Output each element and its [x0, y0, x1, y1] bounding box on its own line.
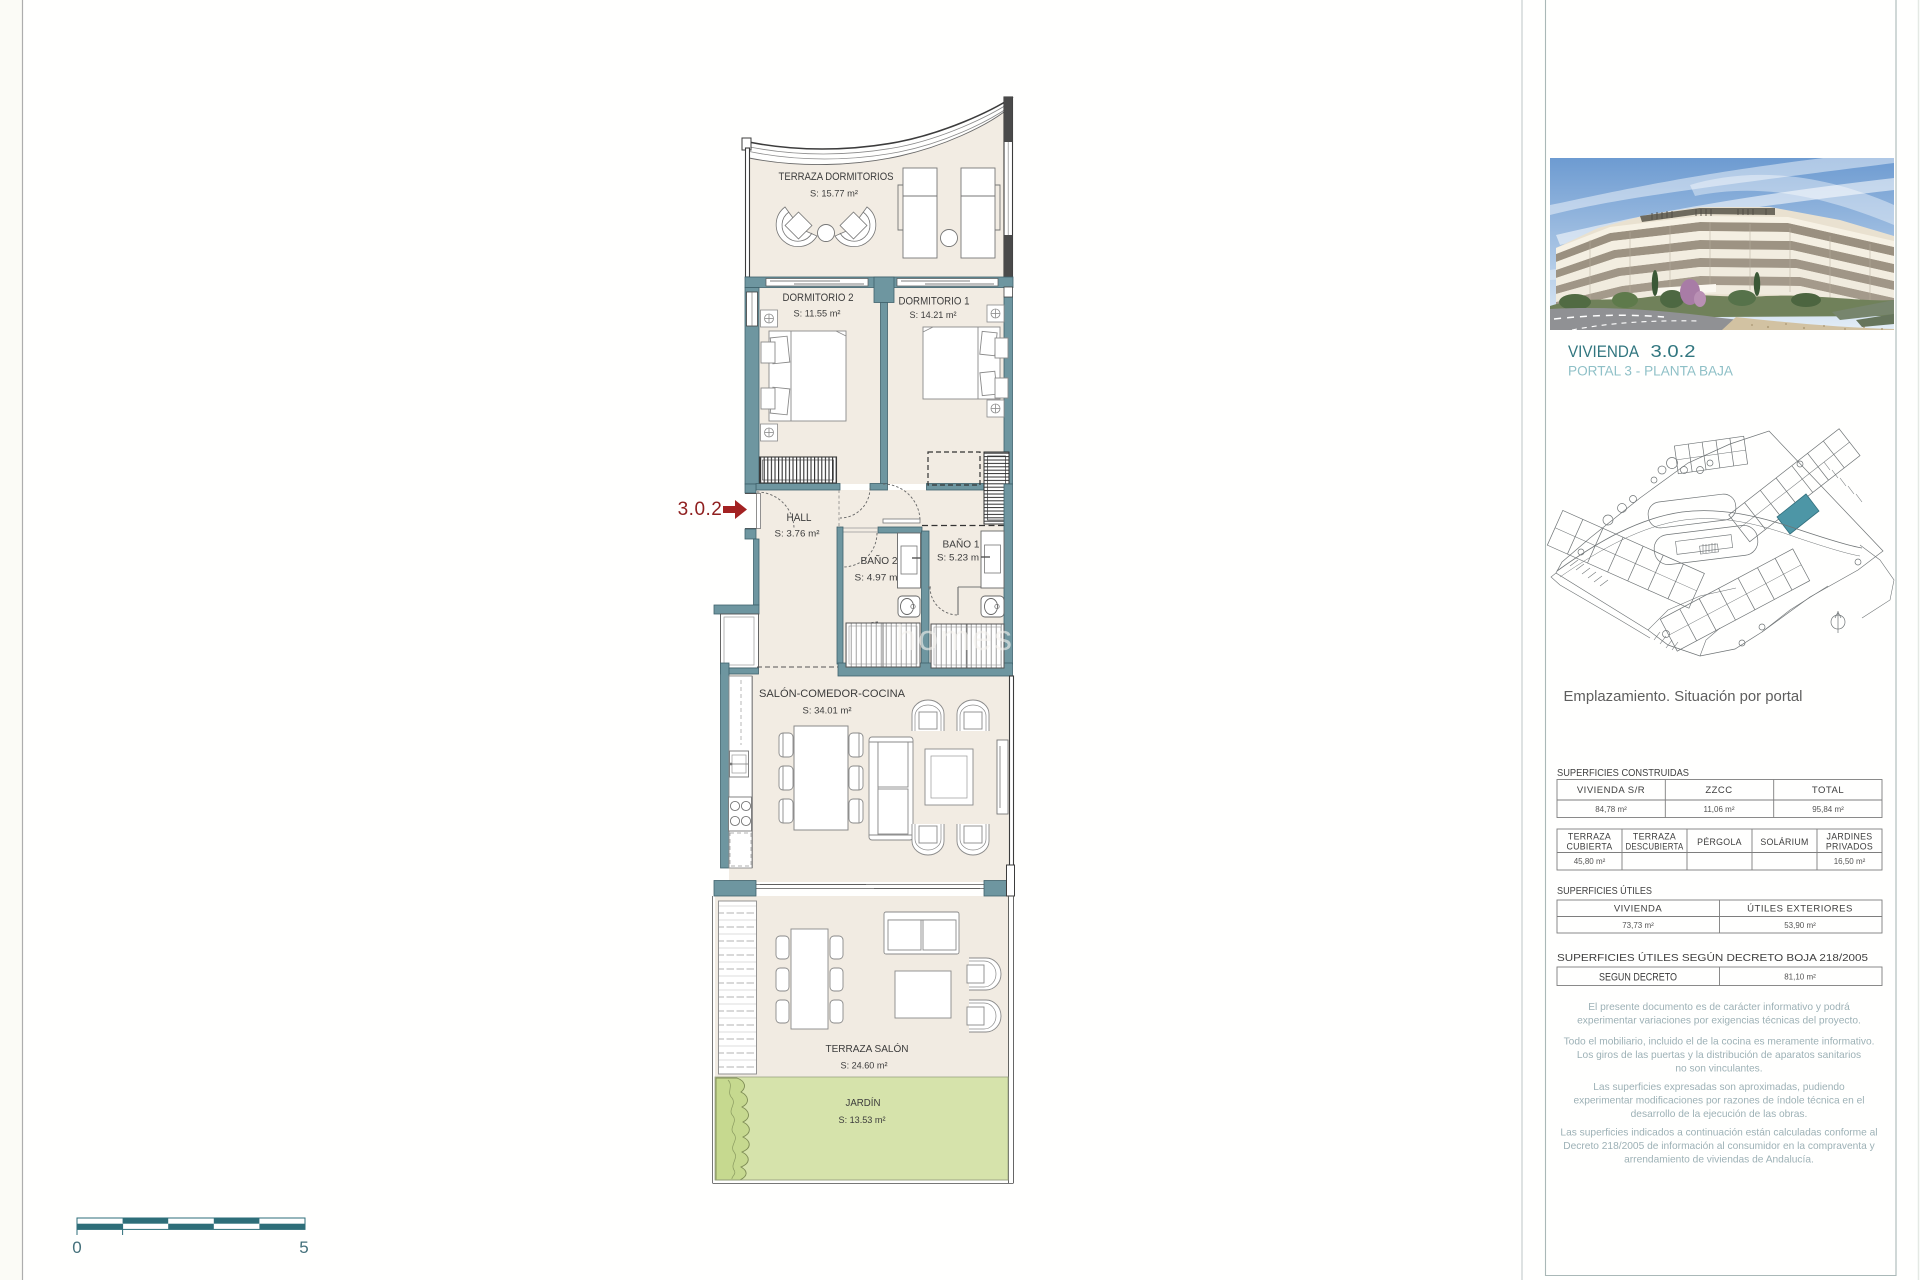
svg-text:Todo el mobiliario, incluido e: Todo el mobiliario, incluido el de la co…: [1564, 1037, 1875, 1048]
svg-text:PÉRGOLA: PÉRGOLA: [1697, 837, 1742, 847]
svg-text:S: 14.21 m²: S: 14.21 m²: [910, 310, 957, 321]
svg-text:5: 5: [299, 1238, 308, 1257]
svg-text:TERRAZA: TERRAZA: [1568, 832, 1611, 842]
svg-text:experimentar variaciones por e: experimentar variaciones por exigencias …: [1577, 1016, 1861, 1027]
svg-text:Los giros de las puertas y la: Los giros de las puertas y la distribuci…: [1577, 1050, 1861, 1061]
svg-text:TERRAZA DORMITORIOS: TERRAZA DORMITORIOS: [779, 171, 894, 183]
svg-text:SUPERFICIES CONSTRUIDAS: SUPERFICIES CONSTRUIDAS: [1557, 767, 1689, 779]
svg-text:DESCUBIERTA: DESCUBIERTA: [1626, 842, 1684, 852]
svg-text:SUPERFICIES ÚTILES SEGÚN DECRE: SUPERFICIES ÚTILES SEGÚN DECRETO BOJA 21…: [1557, 951, 1868, 964]
svg-text:ZZCC: ZZCC: [1705, 785, 1732, 796]
svg-text:Decreto 218/2005 de informació: Decreto 218/2005 de información al consu…: [1563, 1141, 1875, 1152]
svg-text:S: 4.97 m: S: 4.97 m: [855, 573, 898, 584]
svg-text:arrendamiento de viviendas de: arrendamiento de viviendas de Andalucía.: [1624, 1155, 1814, 1166]
svg-text:PORTAL 3 - PLANTA BAJA: PORTAL 3 - PLANTA BAJA: [1568, 364, 1733, 379]
svg-text:S: 11.55 m²: S: 11.55 m²: [794, 309, 841, 320]
svg-text:SALÓN-COMEDOR-COCINA: SALÓN-COMEDOR-COCINA: [759, 687, 906, 700]
svg-text:experimentar modificaciones po: experimentar modificaciones por razones …: [1573, 1096, 1864, 1107]
svg-text:S: 5.23 m: S: 5.23 m: [937, 553, 979, 564]
svg-text:TOTAL: TOTAL: [1812, 785, 1844, 796]
svg-text:S: 3.76 m²: S: 3.76 m²: [775, 529, 820, 540]
svg-text:VIVIENDA S/R: VIVIENDA S/R: [1577, 785, 1645, 796]
svg-text:El presente documento es de ca: El presente documento es de carácter inf…: [1588, 1002, 1850, 1013]
svg-text:0: 0: [72, 1238, 81, 1257]
svg-text:desarrollo de la ejecución de: desarrollo de la ejecución de las obras.: [1631, 1109, 1808, 1120]
svg-text:BAÑO 2: BAÑO 2: [861, 554, 898, 567]
svg-text:homes: homes: [896, 617, 1014, 658]
svg-text:3.0.2: 3.0.2: [678, 499, 723, 520]
svg-text:S: 15.77 m²: S: 15.77 m²: [810, 189, 858, 200]
svg-text:81,10 m²: 81,10 m²: [1784, 973, 1816, 982]
svg-text:53,90 m²: 53,90 m²: [1784, 921, 1816, 930]
svg-text:45,80 m²: 45,80 m²: [1574, 857, 1606, 866]
svg-text:16,50 m²: 16,50 m²: [1834, 857, 1866, 866]
svg-text:DORMITORIO 1: DORMITORIO 1: [899, 296, 970, 308]
svg-text:DORMITORIO 2: DORMITORIO 2: [783, 292, 854, 304]
svg-text:Las superficies indicados a co: Las superficies indicados a continuación…: [1560, 1128, 1877, 1139]
svg-text:S: 24.60 m²: S: 24.60 m²: [841, 1061, 888, 1072]
svg-text:84,78 m²: 84,78 m²: [1595, 805, 1627, 814]
svg-text:BAÑO 1: BAÑO 1: [943, 538, 980, 551]
svg-text:ÚTILES EXTERIORES: ÚTILES EXTERIORES: [1747, 904, 1853, 915]
svg-text:SOLÁRIUM: SOLÁRIUM: [1760, 837, 1808, 847]
svg-text:HALL: HALL: [787, 512, 812, 524]
svg-text:JARDÍN: JARDÍN: [846, 1096, 881, 1109]
svg-text:Emplazamiento. Situación por p: Emplazamiento. Situación por portal: [1564, 689, 1803, 705]
svg-text:CUBIERTA: CUBIERTA: [1566, 842, 1612, 852]
svg-text:JARDINES: JARDINES: [1827, 832, 1873, 842]
svg-text:no son vinculantes.: no son vinculantes.: [1675, 1064, 1762, 1075]
svg-text:VIVIENDA: VIVIENDA: [1568, 342, 1640, 361]
svg-text:VIVIENDA: VIVIENDA: [1614, 904, 1663, 915]
svg-text:S: 34.01 m²: S: 34.01 m²: [803, 706, 852, 717]
svg-text:SEGUN DECRETO: SEGUN DECRETO: [1599, 972, 1677, 984]
svg-text:PRIVADOS: PRIVADOS: [1826, 842, 1873, 852]
svg-text:TERRAZA SALÓN: TERRAZA SALÓN: [826, 1042, 909, 1055]
svg-text:73,73 m²: 73,73 m²: [1622, 921, 1654, 930]
svg-text:95,84 m²: 95,84 m²: [1812, 805, 1844, 814]
svg-text:3.0.2: 3.0.2: [1651, 341, 1696, 361]
svg-text:TERRAZA: TERRAZA: [1633, 832, 1676, 842]
svg-text:S: 13.53 m²: S: 13.53 m²: [839, 1115, 886, 1126]
svg-text:11,06 m²: 11,06 m²: [1704, 805, 1735, 814]
svg-text:Las superficies expresadas son: Las superficies expresadas son aproximad…: [1593, 1082, 1845, 1093]
svg-text:SUPERFICIES ÚTILES: SUPERFICIES ÚTILES: [1557, 884, 1652, 897]
